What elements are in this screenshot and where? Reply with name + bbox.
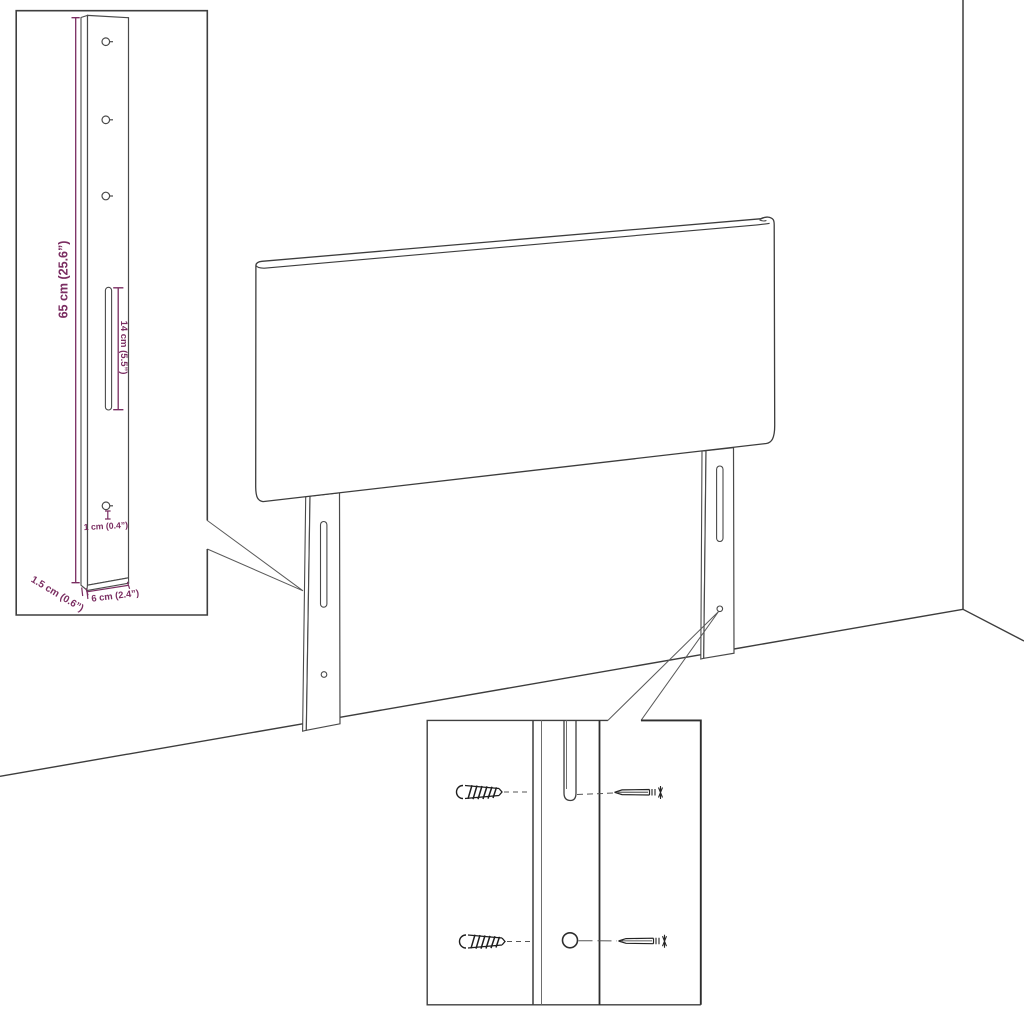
svg-text:6 cm (2.4”): 6 cm (2.4”) bbox=[91, 587, 140, 604]
svg-text:14 cm (5.5”): 14 cm (5.5”) bbox=[118, 321, 129, 375]
svg-text:1.5 cm (0.6”): 1.5 cm (0.6”) bbox=[29, 574, 86, 614]
svg-text:65 cm (25.6”): 65 cm (25.6”) bbox=[57, 241, 71, 319]
